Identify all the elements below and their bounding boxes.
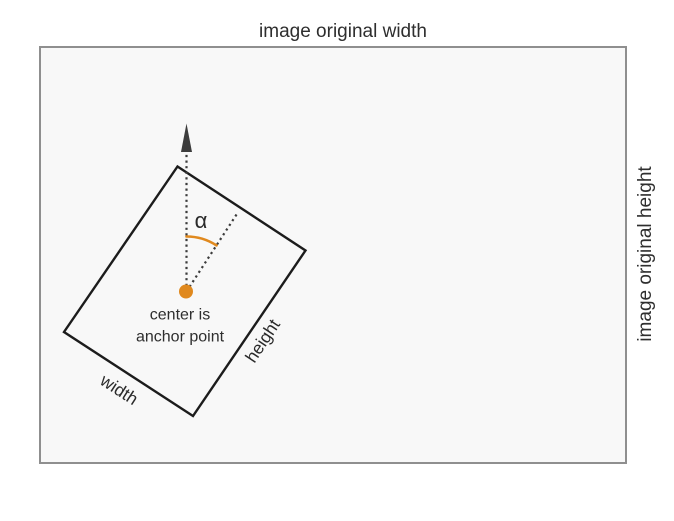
anchor-point-dot bbox=[179, 285, 193, 299]
rotated-rect-diagram bbox=[0, 0, 674, 521]
angle-arc bbox=[187, 237, 217, 246]
alpha-angle-label: α bbox=[195, 208, 208, 234]
up-arrowhead-icon bbox=[181, 124, 192, 153]
anchor-caption-line2: anchor point bbox=[136, 326, 224, 348]
anchor-caption: center is anchor point bbox=[136, 305, 224, 348]
diagram-canvas: image original width image original heig… bbox=[0, 0, 674, 521]
anchor-caption-line1: center is bbox=[136, 305, 224, 327]
